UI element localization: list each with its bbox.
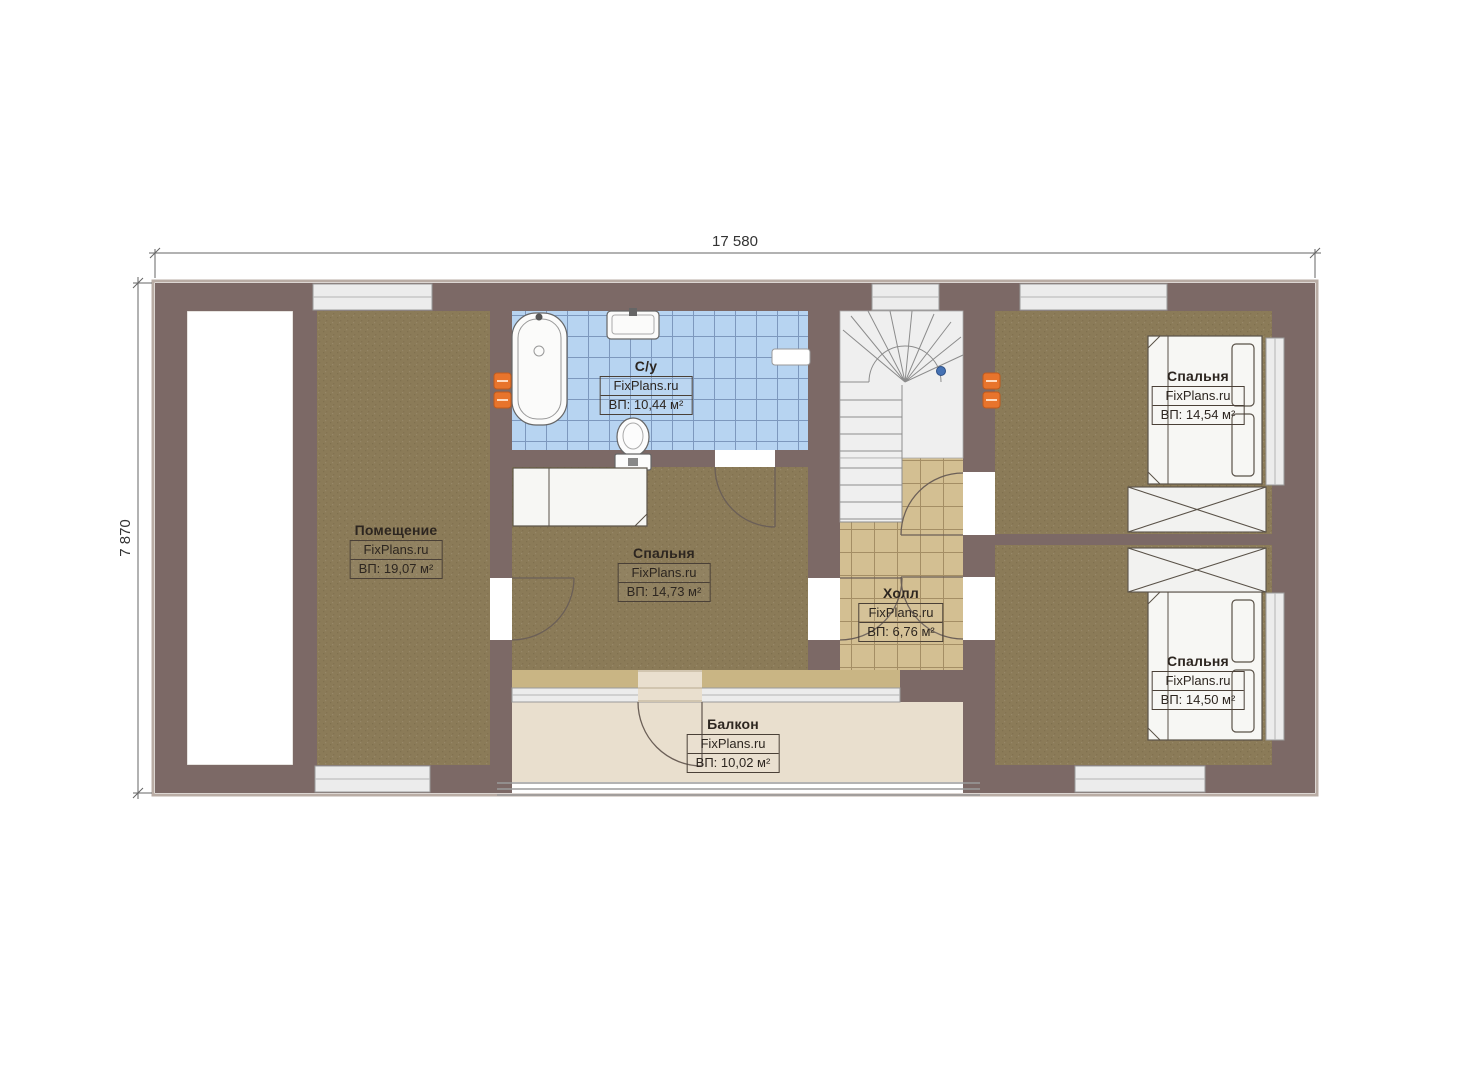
room-floor-pomeshchenie-texture [317,311,490,765]
void-area [187,311,293,765]
balcony-floor [512,702,963,782]
wall-bed-hall-lower [808,640,840,670]
wall-bedrooms-divider [995,534,1272,545]
bathroom-shelf [772,349,810,365]
wall-hall-right-mid [963,535,995,577]
bathtub-faucet-icon [536,314,543,321]
wall-hall-right-lower [963,640,995,670]
floor-plan-drawing: 17 580 7 870 [0,0,1474,1080]
dimension-left [133,277,152,799]
sink-faucet-icon [629,308,637,316]
door-opening-pom-bedroom [490,578,512,640]
wall-balcony-right [963,702,995,765]
door-opening-bedroom-hall [808,578,840,640]
dimension-width-label: 17 580 [712,233,758,250]
door-opening-bath-bedroom [715,450,775,467]
pillow [1232,670,1254,732]
pillow [1232,600,1254,662]
pillow [1232,344,1254,406]
wall-left [155,283,187,793]
toilet-bowl [617,418,649,456]
toilet-button [628,458,638,466]
pillow [1232,414,1254,476]
balcony-door-opening [638,670,702,702]
wall-bath-bed-right [775,450,808,467]
wall-pom-bed-lower [490,640,512,670]
wall-void-divider [293,311,317,765]
wall-bath-bed-left [512,450,715,467]
wall-bath-stair-upper [808,311,840,578]
dimension-top [149,248,1321,278]
door-opening-hall-bedroom-top [963,472,995,535]
stair-handrail-post [937,367,946,376]
door-opening-hall-bedroom-bottom [963,577,995,640]
floors [187,311,1272,782]
balcony-front [512,670,900,702]
balcony-railing [497,783,980,795]
bed-middle-bedroom [513,468,647,526]
dimension-height-label: 7 870 [117,519,134,557]
wall-pom-bath-upper [490,311,512,578]
floor-plan-page: 17 580 7 870 Помещение FixPlans.ru ВП: 1… [0,0,1474,1080]
balcony-sill-strip [512,670,900,688]
